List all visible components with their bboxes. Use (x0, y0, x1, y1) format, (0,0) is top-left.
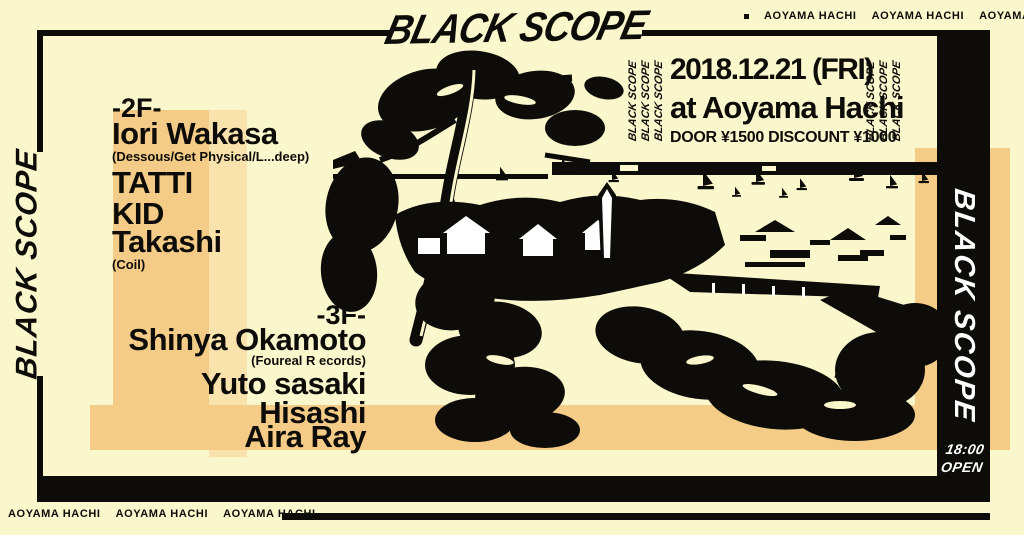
title-logo-top: BLACK SCOPE (388, 2, 644, 52)
event-date: 2018.12.21 (FRI) (670, 55, 866, 85)
mini-logo-text: BLACK SCOPE (640, 60, 652, 143)
event-info: 2018.12.21 (FRI) at Aoyama Hachi DOOR ¥1… (670, 55, 866, 146)
title-logo-text: BLACK SCOPE (381, 4, 650, 50)
artist-name: Iori Wakasa (112, 118, 278, 149)
right-sidebar: BLACK SCOPE 18:00 OPEN (937, 30, 990, 502)
event-flank-right: BLACK SCOPE BLACK SCOPE BLACK SCOPE (864, 52, 903, 150)
frame-top-left-segment (37, 30, 390, 36)
frame-left-lower-segment (37, 376, 43, 480)
artist-name: Takashi (112, 226, 222, 257)
title-logo-text: BLACK SCOPE (949, 186, 978, 423)
venue-marquee-item: AOYAMA HACHI (8, 508, 101, 520)
footer-line (282, 513, 990, 520)
mini-logo-text: BLACK SCOPE (891, 60, 903, 143)
open-time: 18:00 (937, 441, 993, 459)
mini-logo-text: BLACK SCOPE (653, 60, 665, 143)
mini-logo-text: BLACK SCOPE (878, 60, 890, 143)
top-marquee: AOYAMA HACHI AOYAMA HACHI AOYAMA HACHI (744, 10, 1024, 22)
venue-marquee-item: AOYAMA HACHI (116, 508, 209, 520)
artist-name: Aira Ray (244, 421, 366, 452)
sea-horizon (333, 151, 937, 179)
venue-marquee-item: AOYAMA HACHI (979, 10, 1024, 22)
mini-logo-text: BLACK SCOPE (865, 60, 877, 143)
artist-name: TATTI (112, 167, 193, 198)
event-flyer: AOYAMA HACHI AOYAMA HACHI AOYAMA HACHI B… (0, 0, 1024, 535)
artist-affiliation: (Coil) (112, 258, 145, 271)
title-logo-left: BLACK SCOPE (0, 150, 56, 378)
title-logo-right: BLACK SCOPE (937, 160, 990, 450)
venue-marquee-item: AOYAMA HACHI (872, 10, 965, 22)
frame-left-upper-segment (37, 30, 43, 152)
artist-name: Shinya Okamoto (128, 324, 366, 355)
frame-top-right-segment (642, 30, 937, 36)
open-label: OPEN (934, 459, 990, 477)
event-venue: at Aoyama Hachi (670, 92, 866, 123)
event-flank-left: BLACK SCOPE BLACK SCOPE BLACK SCOPE (626, 52, 665, 150)
event-price: DOOR ¥1500 DISCOUNT ¥1000 (670, 130, 866, 146)
open-time-block: 18:00 OPEN (934, 441, 993, 476)
frame-bottom-bar (37, 476, 990, 502)
venue-marquee-item: AOYAMA HACHI (764, 10, 857, 22)
lineup-2f: -2F- Iori Wakasa (Dessous/Get Physical/L… (112, 90, 342, 275)
mini-logo-text: BLACK SCOPE (627, 60, 639, 143)
lineup-3f: -3F- Shinya Okamoto (Foureal R ecords) Y… (138, 302, 366, 452)
artist-affiliation: (Dessous/Get Physical/L...deep) (112, 150, 309, 163)
bullet-square-icon (744, 14, 749, 19)
title-logo-text: BLACK SCOPE (13, 147, 43, 381)
bottom-marquee: AOYAMA HACHI AOYAMA HACHI AOYAMA HACHI (8, 508, 316, 520)
